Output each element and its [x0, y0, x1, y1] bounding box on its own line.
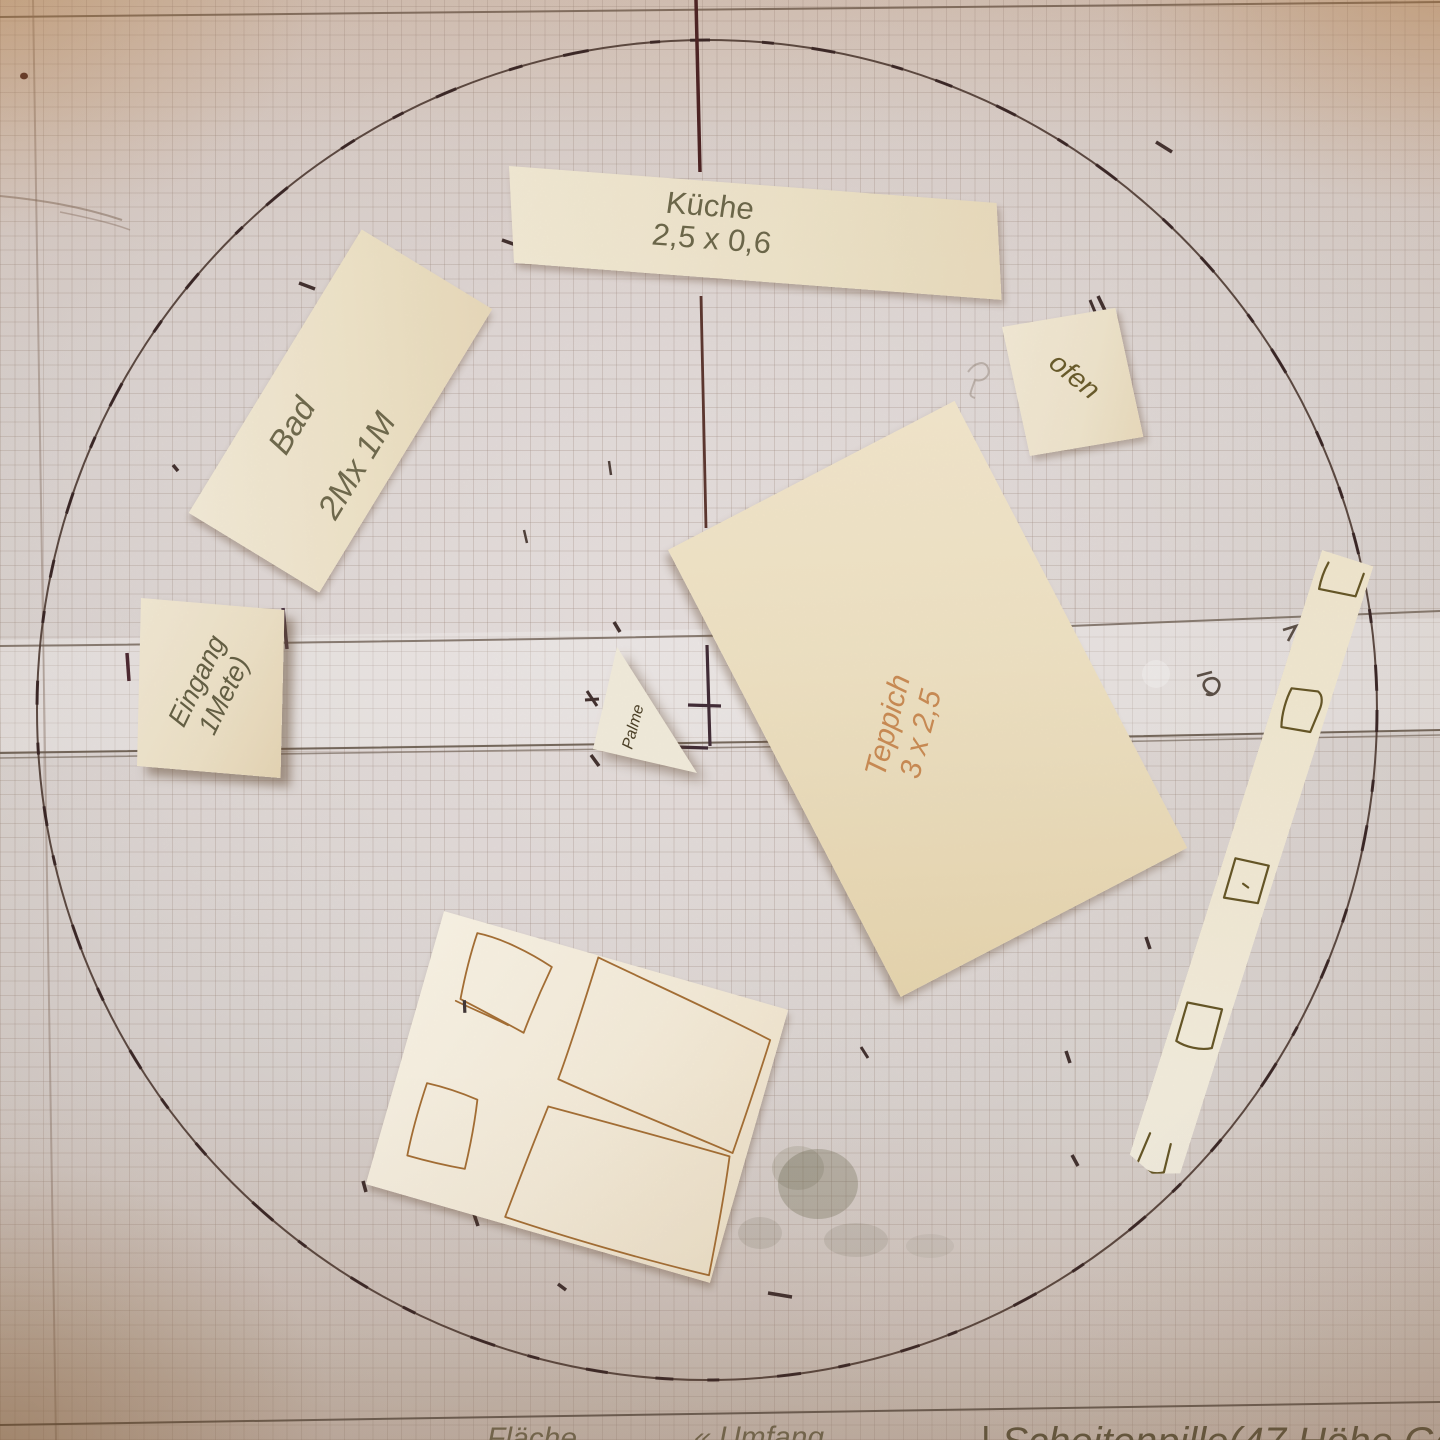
svg-text:« Umfang: « Umfang [694, 1421, 824, 1440]
svg-text:Fläche: Fläche [487, 1422, 577, 1440]
svg-text:| Scheitenpille(47 Höhe Gewl K: | Scheitenpille(47 Höhe Gewl K [980, 1420, 1440, 1440]
